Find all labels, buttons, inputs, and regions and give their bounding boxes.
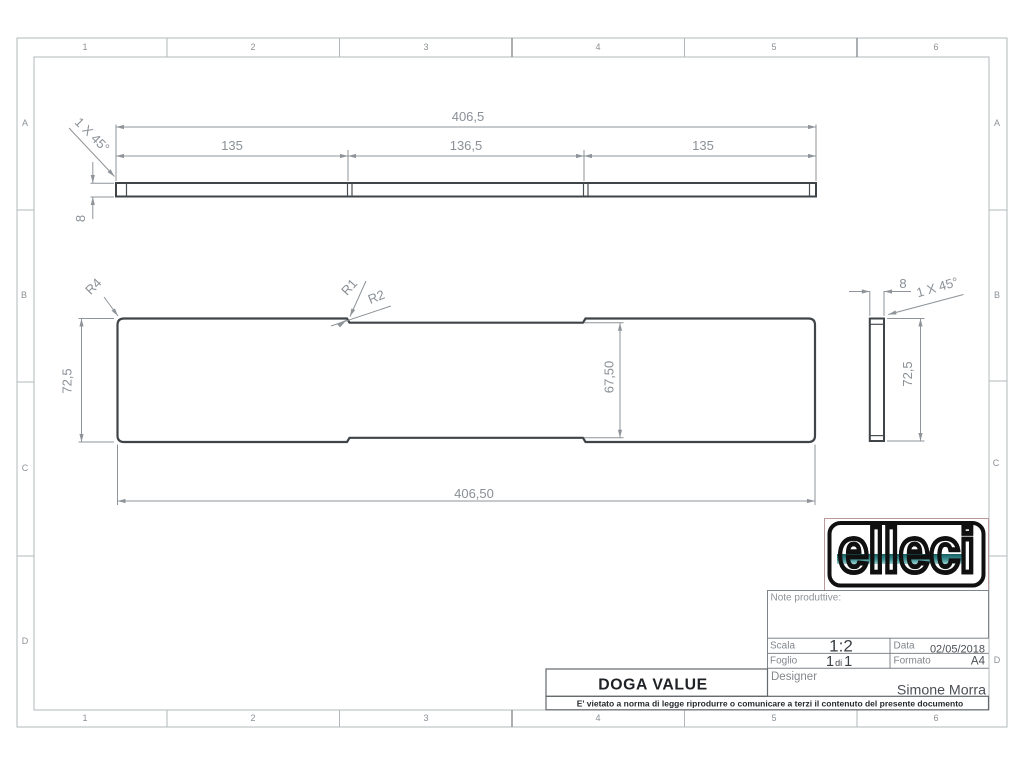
svg-text:1: 1 [82, 713, 87, 723]
svg-text:D: D [22, 636, 29, 646]
svg-text:406,50: 406,50 [454, 486, 494, 501]
svg-text:02/05/2018: 02/05/2018 [930, 644, 985, 656]
svg-text:B: B [21, 290, 27, 300]
svg-text:1: 1 [82, 42, 87, 52]
svg-text:2: 2 [250, 42, 255, 52]
svg-text:8: 8 [899, 276, 906, 291]
svg-text:72,5: 72,5 [60, 368, 75, 393]
svg-text:406,5: 406,5 [452, 109, 485, 124]
svg-text:Foglio: Foglio [770, 656, 798, 667]
svg-text:135: 135 [692, 138, 714, 153]
svg-text:1:2: 1:2 [829, 637, 853, 656]
svg-text:A: A [994, 118, 1000, 128]
svg-text:C: C [22, 463, 29, 473]
svg-text:3: 3 [423, 42, 428, 52]
svg-text:A4: A4 [971, 656, 986, 668]
svg-text:135: 135 [221, 138, 243, 153]
svg-text:Formato: Formato [894, 656, 932, 667]
svg-text:5: 5 [771, 42, 776, 52]
svg-text:Scala: Scala [770, 641, 795, 652]
svg-text:3: 3 [423, 713, 428, 723]
svg-text:B: B [994, 290, 1000, 300]
svg-text:6: 6 [933, 713, 938, 723]
svg-text:DOGA VALUE: DOGA VALUE [598, 677, 708, 694]
svg-text:8: 8 [73, 215, 88, 222]
svg-text:Data: Data [894, 641, 916, 652]
svg-text:D: D [994, 655, 1001, 665]
svg-text:136,5: 136,5 [450, 138, 483, 153]
svg-text:4: 4 [595, 713, 600, 723]
svg-text:72,5: 72,5 [900, 361, 915, 386]
svg-text:C: C [993, 458, 1000, 468]
svg-text:2: 2 [250, 713, 255, 723]
svg-text:5: 5 [771, 713, 776, 723]
svg-text:Designer: Designer [771, 671, 817, 683]
svg-text:E' vietato a norma di legge ri: E' vietato a norma di legge riprodurre o… [577, 698, 963, 708]
svg-text:Note produttive:: Note produttive: [771, 593, 842, 604]
svg-text:67,50: 67,50 [602, 361, 617, 394]
svg-text:elleci: elleci [838, 517, 975, 586]
svg-text:4: 4 [595, 42, 600, 52]
svg-text:A: A [22, 118, 28, 128]
svg-text:6: 6 [933, 42, 938, 52]
